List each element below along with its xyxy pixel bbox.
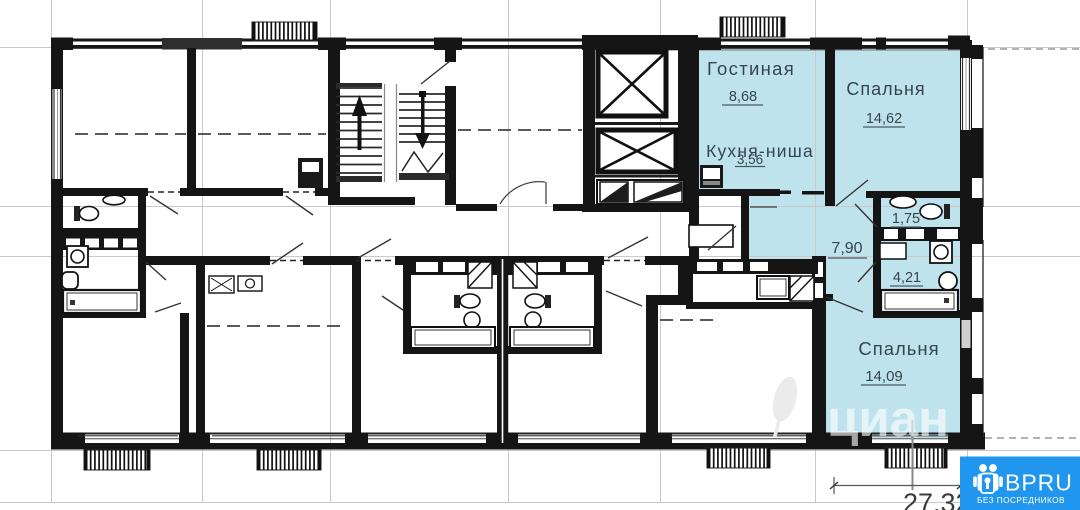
svg-text:Гостиная: Гостиная — [707, 58, 795, 79]
svg-text:14,09: 14,09 — [865, 368, 903, 385]
svg-text:7,90: 7,90 — [831, 240, 862, 257]
svg-text:Спальня: Спальня — [858, 338, 939, 359]
svg-text:4,21: 4,21 — [893, 270, 921, 286]
svg-text:1,75: 1,75 — [892, 211, 920, 227]
svg-text:циан: циан — [827, 390, 949, 447]
svg-text:3,56: 3,56 — [737, 152, 763, 167]
svg-text:8,68: 8,68 — [729, 89, 757, 105]
svg-text:Спальня: Спальня — [846, 79, 925, 99]
svg-text:BPRU: BPRU — [1005, 470, 1073, 496]
svg-text:БЕЗ ПОСРЕДНИКОВ: БЕЗ ПОСРЕДНИКОВ — [977, 495, 1065, 505]
svg-text:14,62: 14,62 — [866, 111, 902, 127]
